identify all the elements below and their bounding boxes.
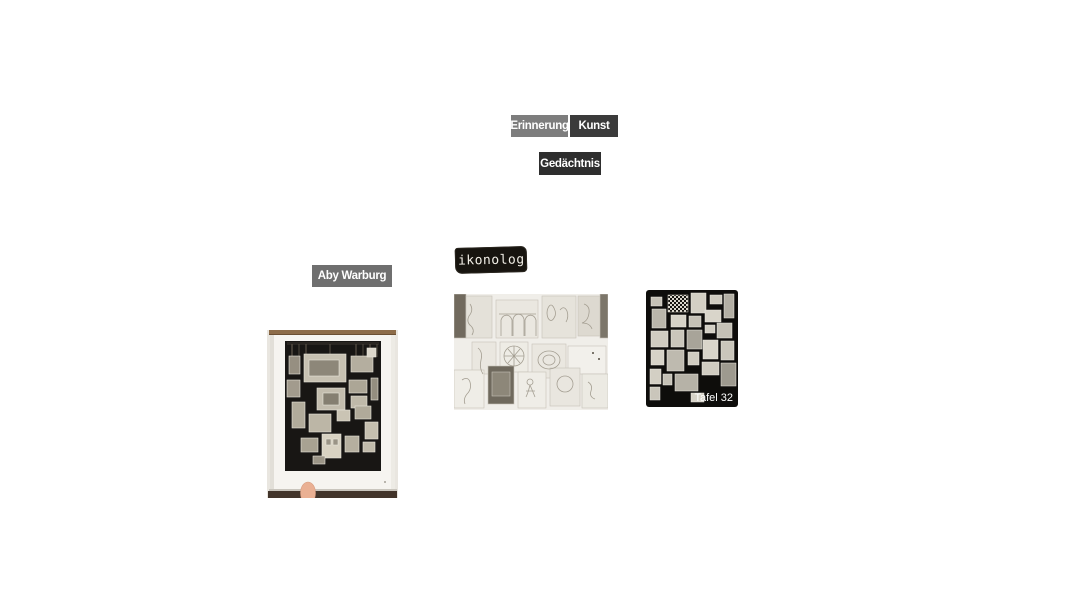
node-aby-warburg[interactable]: Aby Warburg xyxy=(312,265,392,287)
tafel-32-image[interactable]: Tafel 32 xyxy=(646,290,738,407)
sketch-collage-graphic xyxy=(454,294,608,410)
sketch-collage-image[interactable] xyxy=(454,294,608,410)
book-photo-image[interactable] xyxy=(267,330,398,498)
book-photo-graphic xyxy=(267,330,398,498)
node-erinnerung[interactable]: Erinnerung xyxy=(511,115,568,137)
ikonolog-text: ikonolog xyxy=(458,252,525,268)
ikonolog-stamp-image[interactable]: ikonolog xyxy=(455,246,528,274)
concept-map-canvas: Erinnerung Kunst Gedächtnis Aby Warburg … xyxy=(0,0,1066,600)
node-gedaechtnis[interactable]: Gedächtnis xyxy=(539,152,601,175)
tafel-32-caption: Tafel 32 xyxy=(694,392,733,404)
tafel-32-graphic xyxy=(646,290,738,407)
node-kunst[interactable]: Kunst xyxy=(570,115,618,137)
